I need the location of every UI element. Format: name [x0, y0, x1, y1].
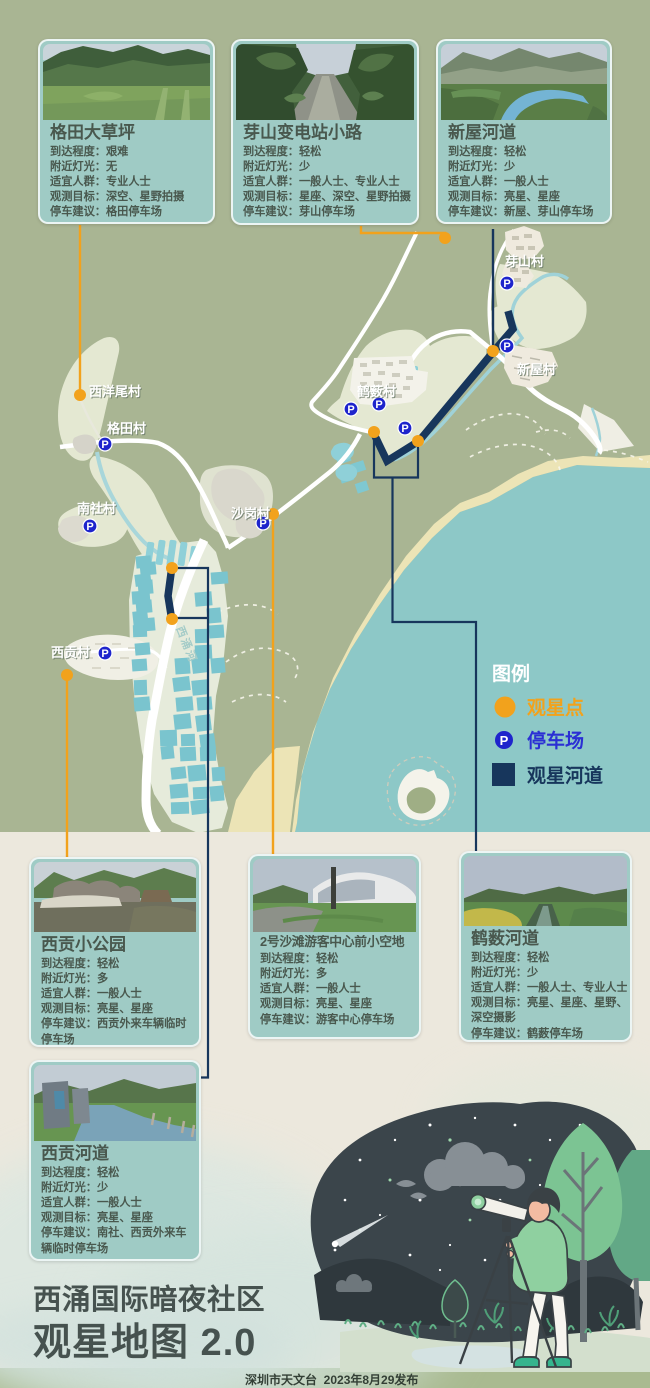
svg-text:沙岗村: 沙岗村 [231, 506, 270, 521]
svg-text:鹤薮村: 鹤薮村 [357, 384, 396, 399]
svg-text:P: P [101, 648, 108, 660]
svg-text:观星点: 观星点 [527, 697, 584, 719]
svg-text:格田村: 格田村 [107, 421, 146, 436]
svg-text:P: P [503, 341, 510, 353]
svg-text:南社村: 南社村 [77, 501, 116, 516]
svg-text:P: P [503, 278, 510, 290]
svg-text:停车场: 停车场 [527, 729, 584, 752]
svg-text:P: P [375, 399, 382, 411]
svg-text:观星河道: 观星河道 [527, 764, 603, 787]
svg-text:西贡村: 西贡村 [51, 645, 90, 660]
svg-text:P: P [500, 733, 509, 748]
svg-text:P: P [86, 521, 93, 533]
svg-text:芽山村: 芽山村 [505, 254, 544, 269]
svg-text:新屋村: 新屋村 [517, 362, 556, 377]
svg-text:图例: 图例 [492, 662, 530, 685]
svg-text:P: P [101, 439, 108, 451]
svg-text:P: P [401, 423, 408, 435]
svg-text:西洋尾村: 西洋尾村 [89, 384, 141, 399]
svg-text:P: P [347, 404, 354, 416]
